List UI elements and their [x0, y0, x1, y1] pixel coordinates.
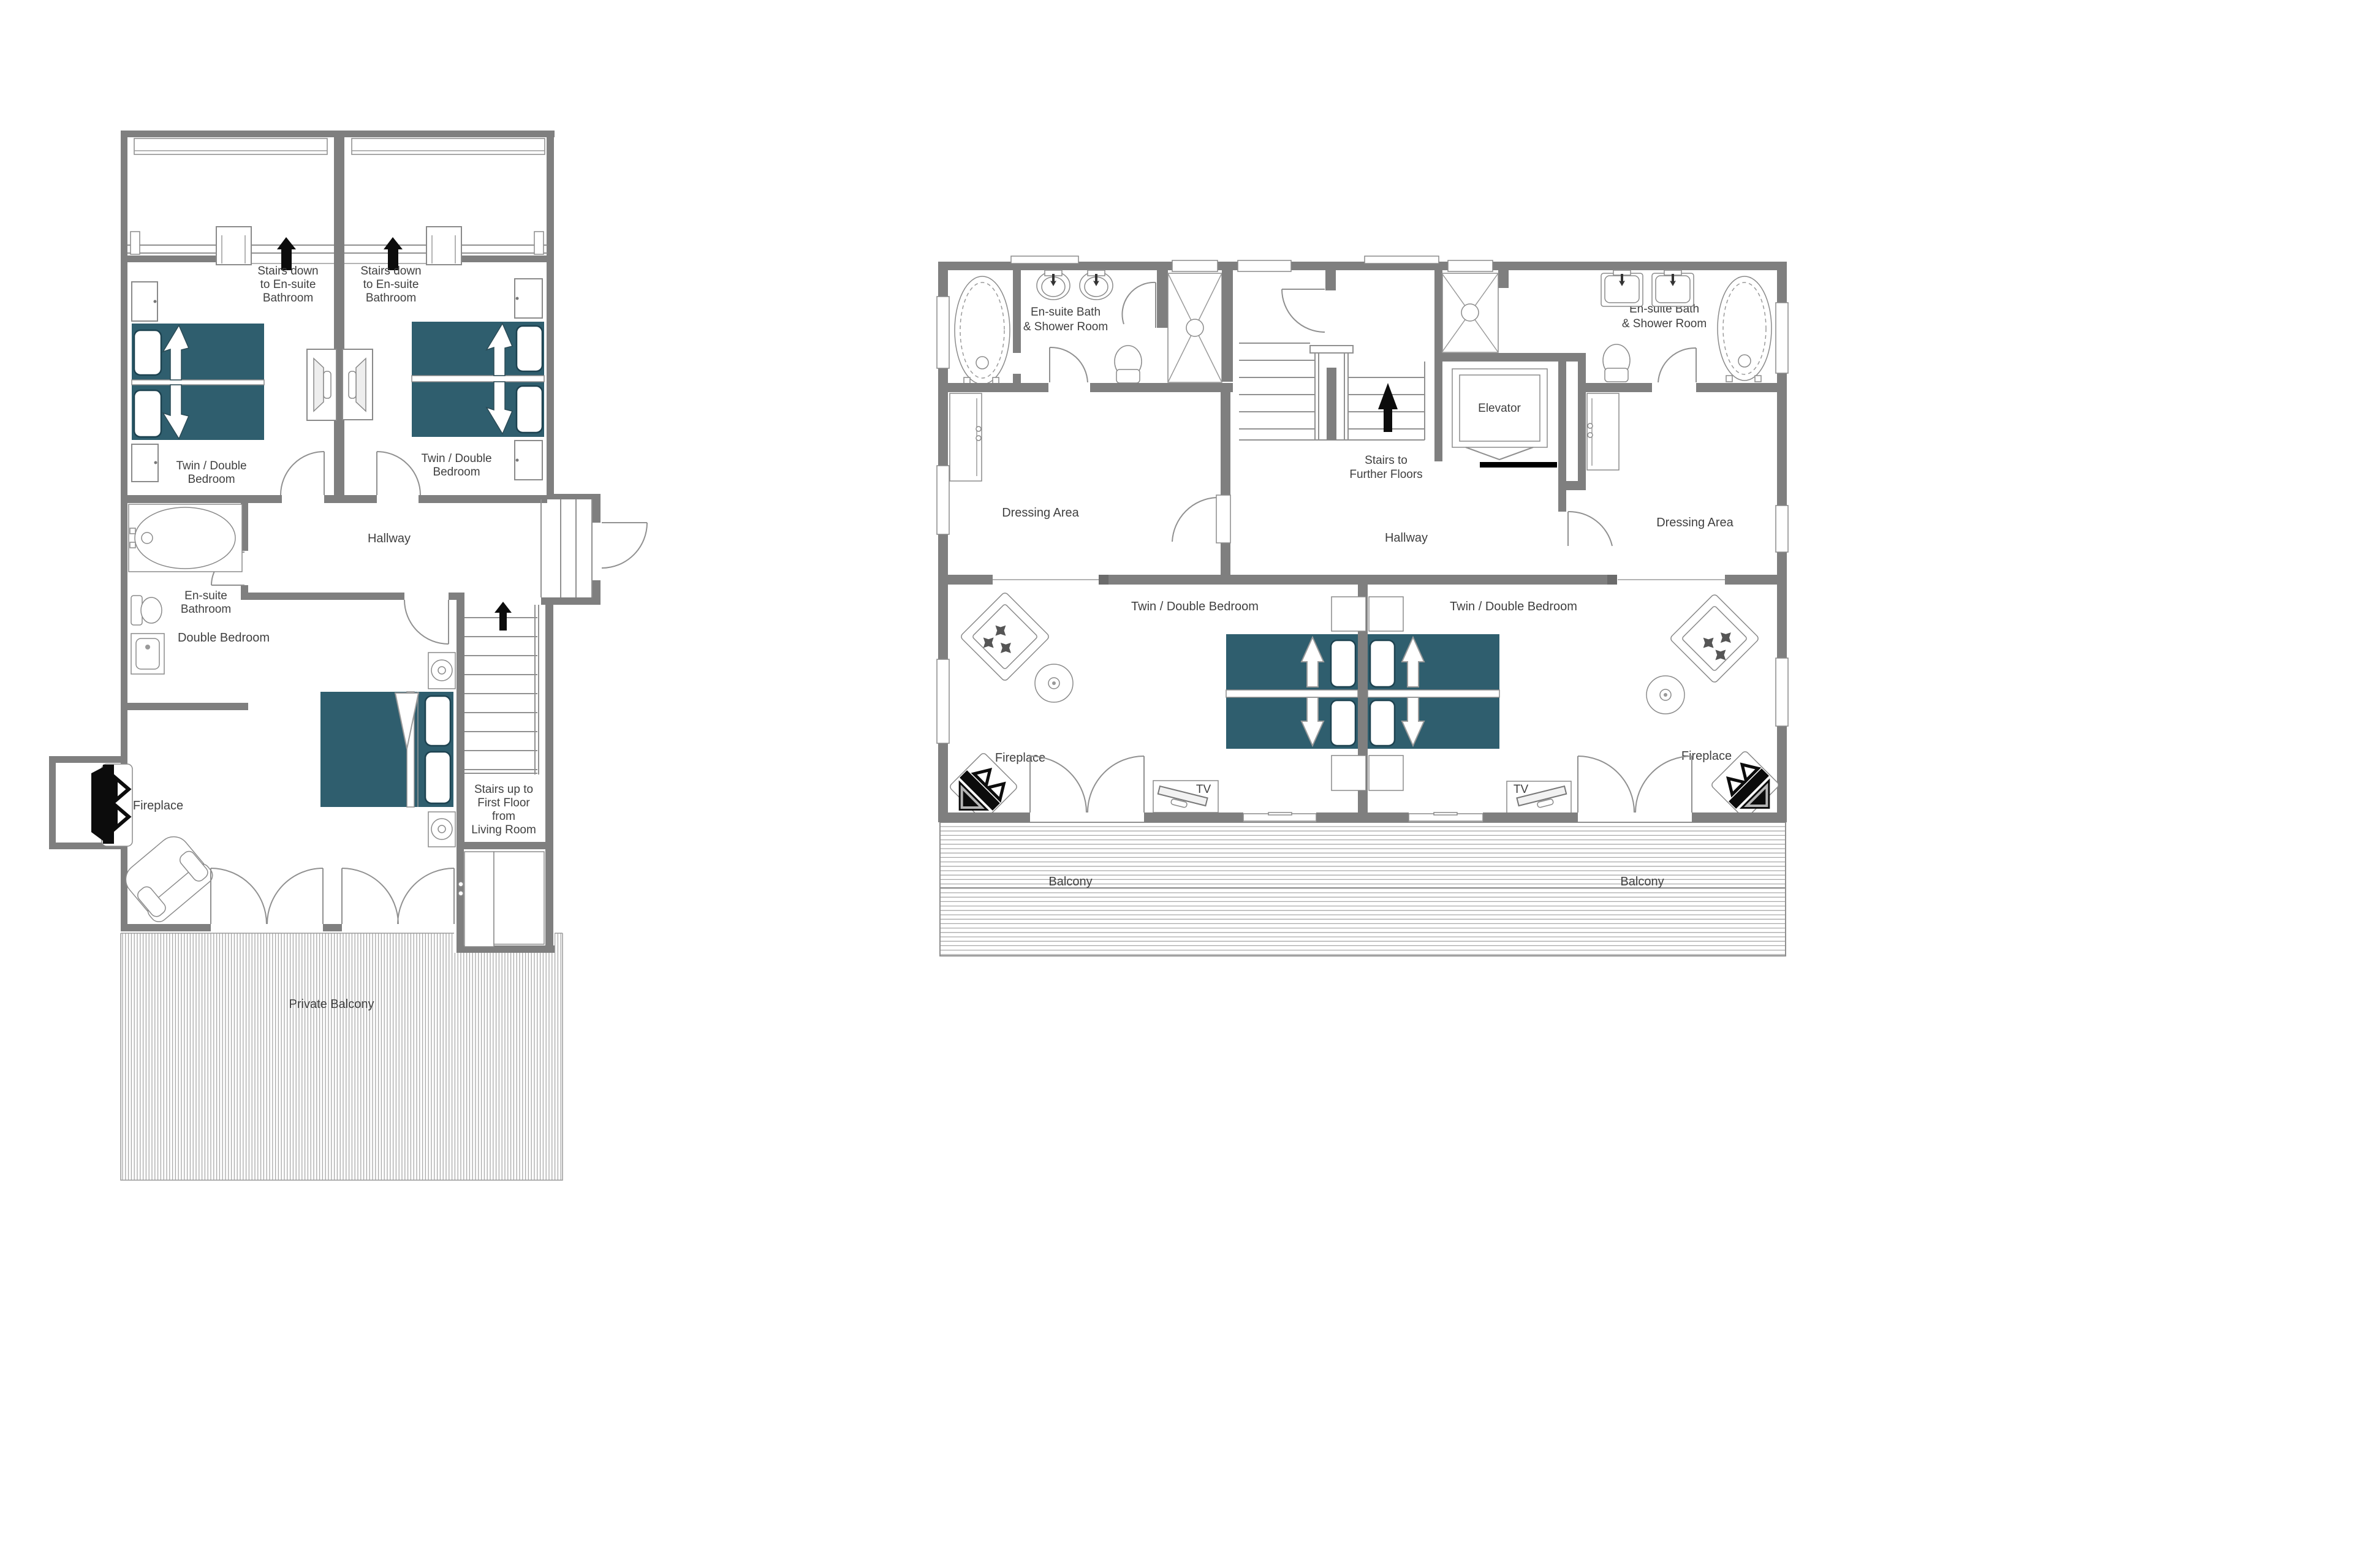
svg-text:Balcony: Balcony: [1048, 875, 1092, 888]
svg-text:Hallway: Hallway: [1385, 531, 1428, 545]
svg-text:Stairs to: Stairs to: [1365, 454, 1408, 467]
svg-text:Twin / Double: Twin / Double: [421, 452, 491, 465]
svg-text:Double Bedroom: Double Bedroom: [178, 631, 270, 645]
svg-text:Fireplace: Fireplace: [133, 799, 183, 812]
svg-text:Bedroom: Bedroom: [188, 473, 235, 486]
svg-text:Fireplace: Fireplace: [995, 751, 1045, 765]
svg-text:Elevator: Elevator: [1478, 402, 1521, 415]
svg-text:Living Room: Living Room: [471, 824, 536, 836]
svg-text:En-suite Bath: En-suite Bath: [1031, 306, 1101, 319]
svg-text:TV: TV: [1196, 783, 1211, 796]
svg-text:Hallway: Hallway: [368, 532, 411, 545]
svg-text:Balcony: Balcony: [1620, 875, 1664, 888]
svg-text:Twin / Double: Twin / Double: [176, 460, 246, 472]
svg-text:Dressing Area: Dressing Area: [1002, 506, 1079, 520]
svg-text:En-suite: En-suite: [184, 589, 227, 602]
svg-text:& Shower Room: & Shower Room: [1622, 317, 1707, 330]
svg-text:from: from: [492, 810, 515, 823]
svg-text:Twin / Double Bedroom: Twin / Double Bedroom: [1450, 600, 1577, 613]
svg-text:First Floor: First Floor: [477, 797, 530, 809]
svg-text:Bathroom: Bathroom: [366, 292, 416, 305]
svg-text:Bathroom: Bathroom: [181, 603, 231, 616]
svg-text:Stairs down: Stairs down: [257, 265, 318, 278]
svg-text:to En-suite: to En-suite: [260, 278, 316, 291]
svg-text:Further Floors: Further Floors: [1349, 468, 1422, 481]
svg-text:to En-suite: to En-suite: [363, 278, 419, 291]
svg-text:& Shower Room: & Shower Room: [1023, 320, 1108, 333]
svg-text:Private Balcony: Private Balcony: [289, 998, 374, 1011]
svg-text:Dressing Area: Dressing Area: [1656, 516, 1733, 529]
svg-text:Twin / Double Bedroom: Twin / Double Bedroom: [1131, 600, 1259, 613]
svg-text:TV: TV: [1514, 783, 1529, 796]
svg-text:Stairs down: Stairs down: [360, 265, 421, 278]
svg-text:Bathroom: Bathroom: [263, 292, 313, 305]
svg-text:Stairs up to: Stairs up to: [474, 783, 533, 796]
svg-text:Bedroom: Bedroom: [433, 466, 480, 479]
